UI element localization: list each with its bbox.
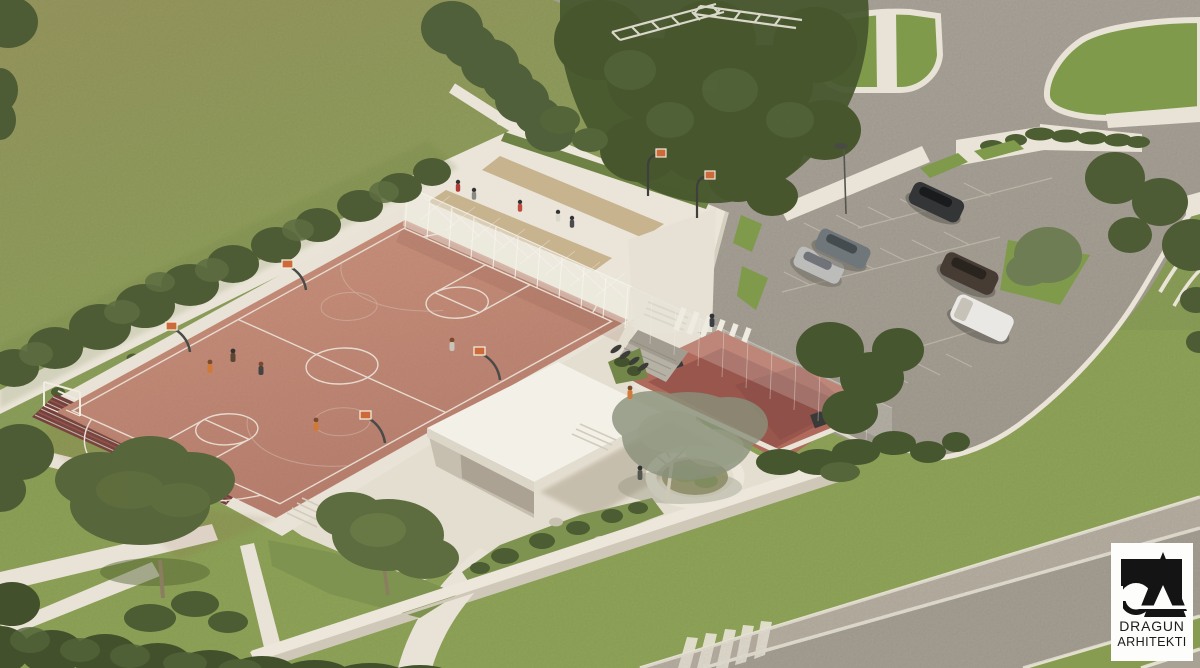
svg-text:DRAGUN: DRAGUN (1119, 618, 1184, 634)
svg-text:ARHITEKTI: ARHITEKTI (1117, 635, 1186, 649)
